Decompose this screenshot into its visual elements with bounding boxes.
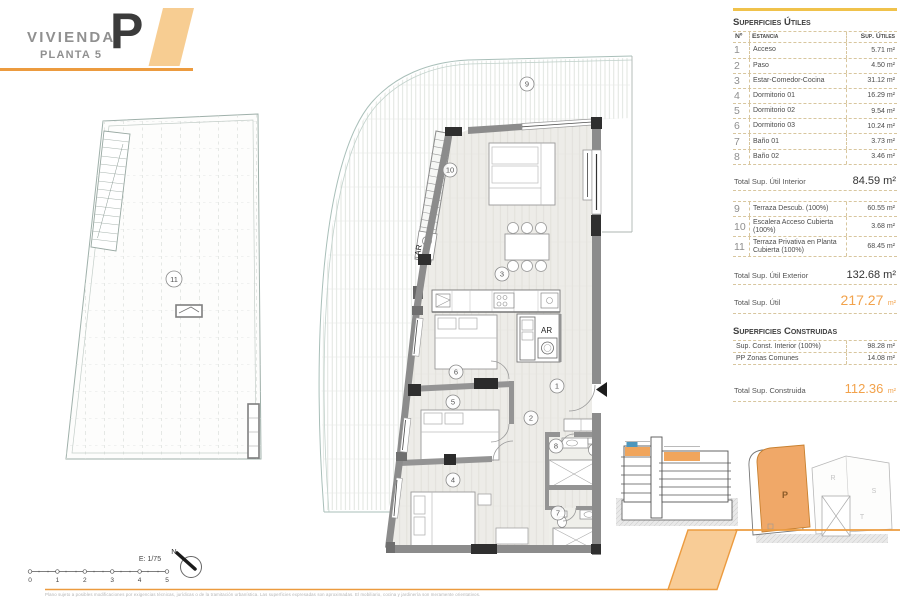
dining-table	[505, 223, 549, 272]
kitchen-counter	[413, 286, 560, 312]
table-row: 10Escalera Acceso Cubierta (100%)3.68 m²	[733, 217, 897, 237]
col-area: Sup. Útiles	[847, 32, 897, 43]
room-label-11: 11	[166, 271, 182, 287]
table-row: 7Baño 013.73 m²	[733, 134, 897, 149]
col-n: Nº	[733, 32, 750, 43]
room-label-6: 6	[449, 365, 463, 379]
room-label-9: 9	[520, 77, 534, 91]
row-area: 60.55 m²	[847, 202, 897, 216]
row-area: 14.08 m²	[847, 353, 897, 364]
table-row: 6Dormitorio 0310.24 m²	[733, 119, 897, 134]
room-label-10: 10	[443, 163, 457, 177]
row-name: Dormitorio 01	[750, 89, 847, 103]
closet-laundry: AR	[517, 314, 560, 362]
svg-text:9: 9	[525, 80, 529, 89]
total-interior-label: Total Sup. Útil Interior	[734, 177, 806, 186]
row-num: 10	[733, 217, 750, 236]
bed-dormitorio-03	[435, 315, 497, 369]
room-label-2: 2	[524, 411, 538, 425]
table-row: 1Acceso5.71 m²	[733, 43, 897, 58]
total-util-unit: m²	[888, 300, 896, 307]
svg-text:1: 1	[555, 382, 559, 391]
svg-text:6: 6	[454, 368, 458, 377]
col-name: Estancia	[750, 32, 847, 43]
row-num: 7	[733, 134, 750, 148]
total-construida-label: Total Sup. Construida	[734, 386, 806, 395]
key-plan-unit-letter: P	[782, 490, 788, 500]
plan-sheet: 11	[0, 0, 900, 600]
total-exterior-value: 132.68 m²	[846, 269, 896, 281]
utiles-heading: Superficies Útiles	[733, 17, 897, 28]
svg-text:2: 2	[83, 577, 87, 584]
table-row: 2Paso4.50 m²	[733, 59, 897, 74]
areas-sidebar: Superficies Útiles Nº Estancia Sup. Útil…	[733, 8, 897, 402]
total-interior-row: Total Sup. Útil Interior 84.59 m²	[733, 172, 897, 191]
row-num: 11	[733, 237, 750, 256]
key-plan-neighbor-s: S	[872, 488, 877, 495]
row-num: 1	[733, 43, 750, 57]
key-plan-neighbor-t: T	[860, 514, 865, 521]
row-num: 4	[733, 89, 750, 103]
svg-text:2: 2	[529, 414, 533, 423]
svg-text:11: 11	[170, 275, 178, 284]
svg-text:5: 5	[451, 398, 455, 407]
row-area: 16.29 m²	[847, 89, 897, 103]
total-util-value: 217.27	[841, 292, 884, 308]
row-name: Paso	[750, 59, 847, 73]
row-name: PP Zonas Comunes	[733, 353, 847, 364]
building-section-diagram	[616, 437, 738, 526]
room-label-7: 7	[551, 506, 565, 520]
row-area: 68.45 m²	[847, 237, 897, 256]
tv-bench	[583, 150, 592, 200]
row-area: 3.73 m²	[847, 134, 897, 148]
row-num: 2	[733, 59, 750, 73]
table-row: 11Terraza Privativa en Planta Cubierta (…	[733, 237, 897, 257]
svg-text:5: 5	[165, 577, 169, 584]
svg-text:3: 3	[110, 577, 114, 584]
table-row: 4Dormitorio 0116.29 m²	[733, 89, 897, 104]
svg-text:7: 7	[556, 509, 560, 518]
row-name: Dormitorio 03	[750, 119, 847, 133]
row-name: Acceso	[750, 43, 847, 57]
row-name: Sup. Const. Interior (100%)	[733, 341, 847, 352]
floor-subtitle: PLANTA 5	[40, 49, 102, 61]
row-area: 10.24 m²	[847, 119, 897, 133]
key-plan-unit-p	[757, 445, 810, 532]
svg-text:1: 1	[56, 577, 60, 584]
sidebar-top-line	[733, 8, 897, 11]
north-arrow-icon: N	[171, 547, 201, 578]
construidas-heading: Superficies Construidas	[733, 326, 897, 337]
total-util-label: Total Sup. Útil	[734, 298, 780, 307]
table-row: PP Zonas Comunes 14.08 m²	[733, 353, 897, 365]
total-exterior-label: Total Sup. Útil Exterior	[734, 271, 808, 280]
section-highlight-floor-left	[625, 447, 650, 456]
row-area: 31.12 m²	[847, 74, 897, 88]
row-area: 3.46 m²	[847, 150, 897, 164]
row-name: Baño 02	[750, 150, 847, 164]
svg-text:10: 10	[446, 166, 454, 175]
scale-bar: 0 1 2 3 4 5 E: 1/75	[28, 556, 169, 584]
exterior-table: 9Terraza Descub. (100%)60.55 m² 10Escale…	[733, 201, 897, 257]
table-row: 9Terraza Descub. (100%)60.55 m²	[733, 201, 897, 217]
section-core	[651, 437, 662, 518]
svg-text:0: 0	[28, 577, 32, 584]
table-row: Sup. Const. Interior (100%) 98.28 m²	[733, 340, 897, 353]
washer-icon	[538, 338, 557, 358]
utiles-header-row: Nº Estancia Sup. Útiles	[733, 31, 897, 44]
room-label-4: 4	[446, 473, 460, 487]
row-num: 9	[733, 202, 750, 216]
total-util-row: Total Sup. Útil 217.27 m²	[733, 289, 897, 314]
row-area: 5.71 m²	[847, 43, 897, 57]
svg-text:3: 3	[500, 270, 504, 279]
roof-vent	[248, 404, 259, 458]
table-row: 8Baño 023.46 m²	[733, 150, 897, 165]
title-rule	[0, 68, 193, 71]
svg-text:8: 8	[554, 442, 558, 451]
room-label-1: 1	[550, 379, 564, 393]
roof-terrace-plan: 11	[66, 114, 261, 459]
disclaimer-text: Plano sujeto a posibles modificaciones p…	[45, 592, 845, 597]
row-num: 3	[733, 74, 750, 88]
total-construida-value: 112.36	[845, 381, 884, 396]
room-label-5: 5	[446, 395, 460, 409]
row-area: 9.54 m²	[847, 104, 897, 118]
table-row: 3Estar-Comedor-Cocina31.12 m²	[733, 74, 897, 89]
roof-skylight	[176, 305, 202, 317]
row-name: Escalera Acceso Cubierta (100%)	[750, 217, 847, 236]
row-num: 6	[733, 119, 750, 133]
row-num: 5	[733, 104, 750, 118]
total-construida-unit: m²	[888, 388, 896, 395]
room-label-3: 3	[495, 267, 509, 281]
key-plan: P R S T	[749, 445, 892, 543]
sofa	[489, 143, 555, 205]
svg-text:4: 4	[451, 476, 455, 485]
ar-label-closet: AR	[541, 326, 552, 335]
table-row: 5Dormitorio 029.54 m²	[733, 104, 897, 119]
svg-text:4: 4	[138, 577, 142, 584]
row-area: 98.28 m²	[847, 341, 897, 352]
section-blue-element	[627, 442, 638, 447]
total-construida-row: Total Sup. Construida 112.36 m²	[733, 377, 897, 402]
row-area: 3.68 m²	[847, 217, 897, 236]
row-name: Estar-Comedor-Cocina	[750, 74, 847, 88]
row-name: Terraza Descub. (100%)	[750, 202, 847, 216]
total-interior-value: 84.59 m²	[853, 175, 896, 187]
room-label-8: 8	[549, 439, 563, 453]
total-exterior-row: Total Sup. Útil Exterior 132.68 m²	[733, 266, 897, 285]
row-name: Terraza Privativa en Planta Cubierta (10…	[750, 237, 847, 256]
scale-label: E: 1/75	[139, 556, 161, 563]
bed-dormitorio-02	[421, 410, 499, 460]
main-floor-plan: AR	[319, 56, 632, 555]
section-highlight-floor-right	[664, 452, 700, 461]
svg-text:N: N	[171, 547, 176, 556]
row-num: 8	[733, 150, 750, 164]
row-area: 4.50 m²	[847, 59, 897, 73]
row-name: Dormitorio 02	[750, 104, 847, 118]
key-plan-neighbor-r: R	[830, 475, 835, 482]
row-name: Baño 01	[750, 134, 847, 148]
project-title: VIVIENDA	[27, 29, 115, 46]
